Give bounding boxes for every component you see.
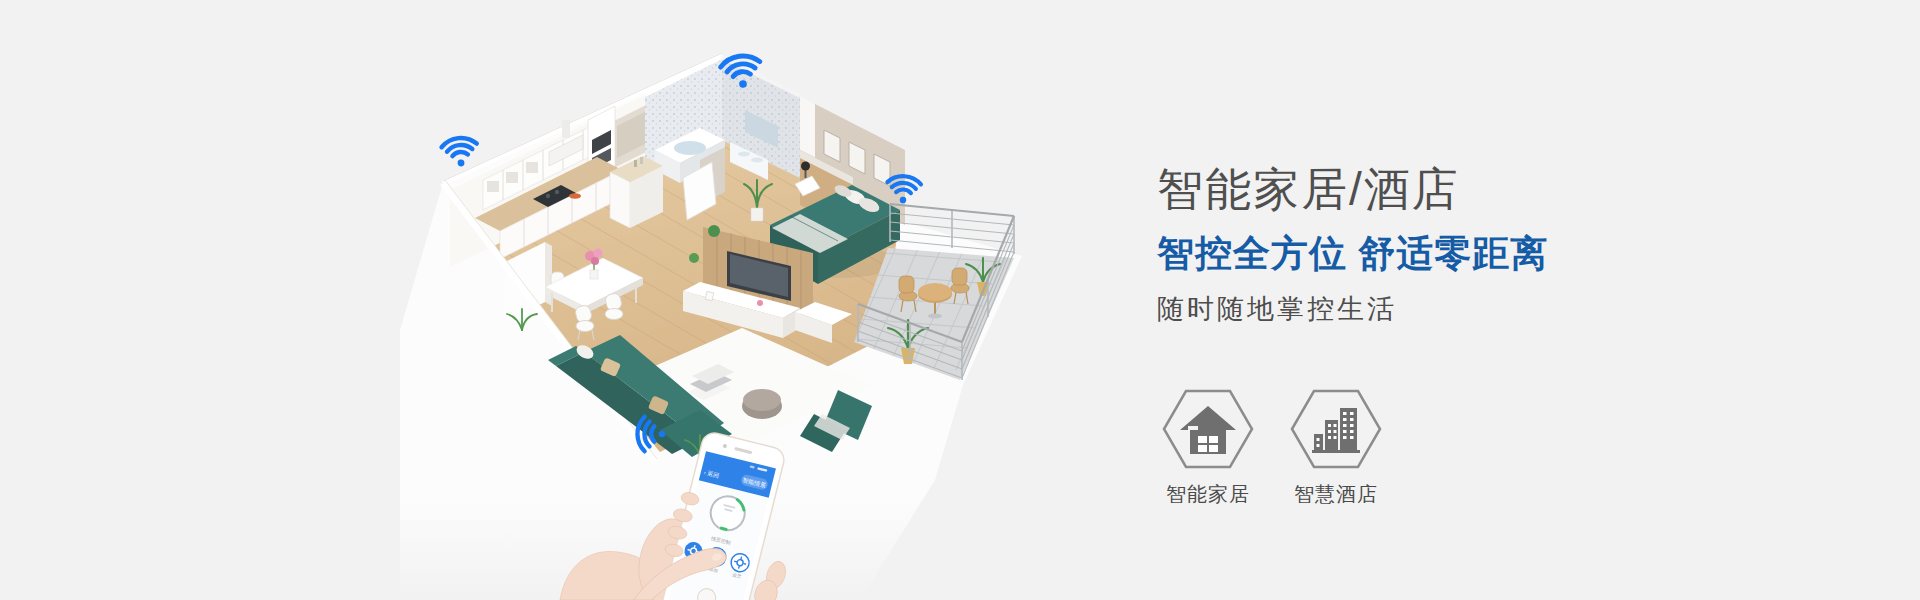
smart-apartment-illustration: ‹ 返回 智能情景 情景控制 [380, 30, 1080, 600]
wifi-icon-kitchen [441, 136, 479, 168]
house-icon [1180, 406, 1236, 454]
smart-hotel-icon [1288, 386, 1384, 472]
hero-tagline: 随时随地掌控生活 [1157, 293, 1548, 325]
hero-text-block: 智能家居/酒店 智控全方位 舒适零距离 随时随地掌控生活 [1157, 162, 1548, 325]
feature-smart-home[interactable]: 智能家居 [1150, 386, 1266, 508]
hero-banner: ‹ 返回 智能情景 情景控制 [0, 0, 1920, 600]
smart-home-icon [1160, 386, 1256, 472]
building-icon [1312, 408, 1360, 453]
feature-smart-hotel[interactable]: 智慧酒店 [1278, 386, 1394, 508]
hero-subtitle: 智控全方位 舒适零距离 [1157, 233, 1548, 276]
page-title: 智能家居/酒店 [1157, 162, 1548, 217]
feature-label: 智慧酒店 [1278, 481, 1394, 508]
feature-list: 智能家居 [1150, 386, 1394, 508]
feature-label: 智能家居 [1150, 481, 1266, 508]
